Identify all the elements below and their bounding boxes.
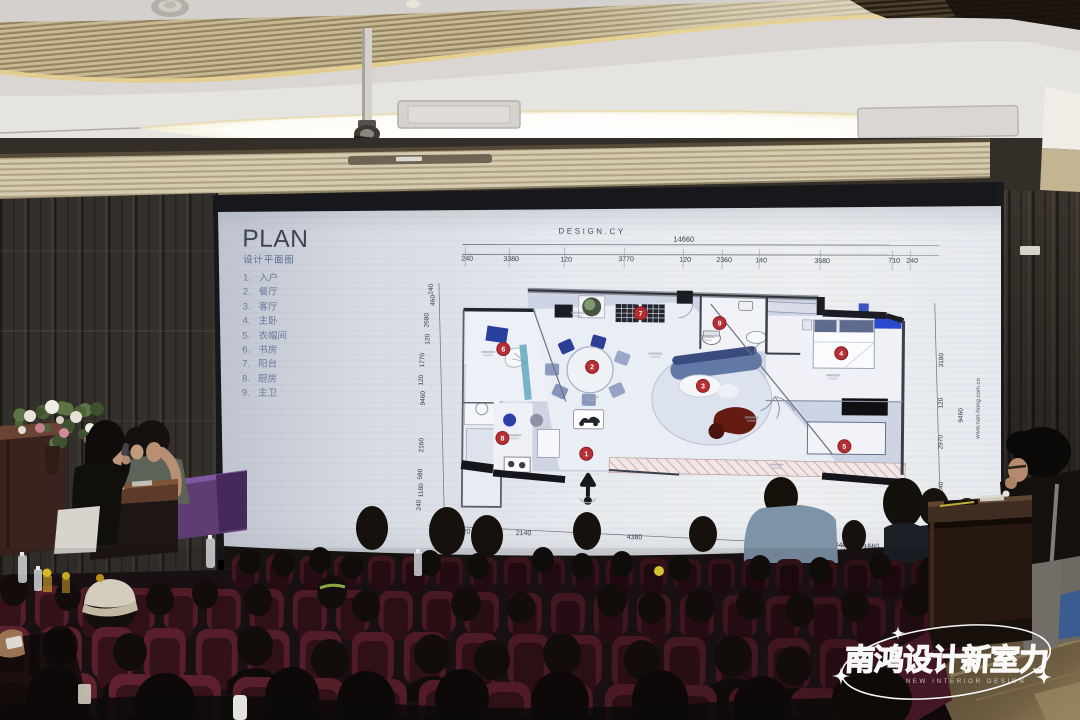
svg-text:9460: 9460 (958, 408, 965, 423)
svg-text:3380: 3380 (503, 256, 519, 263)
svg-text:120: 120 (679, 257, 691, 264)
svg-text:设计平面图: 设计平面图 (243, 253, 295, 265)
svg-text:主卫: 主卫 (258, 387, 278, 399)
svg-text:8.: 8. (242, 373, 250, 384)
svg-text:8: 8 (500, 435, 504, 442)
svg-text:5: 5 (842, 444, 846, 451)
svg-text:140: 140 (755, 257, 767, 264)
svg-text:14660: 14660 (673, 235, 694, 244)
svg-text:240: 240 (906, 258, 918, 265)
svg-text:厨房: 厨房 (258, 373, 277, 385)
svg-text:2: 2 (590, 364, 594, 371)
svg-text:客厅: 客厅 (259, 301, 279, 313)
svg-text:1180: 1180 (418, 483, 425, 497)
svg-text:120: 120 (424, 333, 431, 344)
svg-text:9.: 9. (242, 387, 250, 398)
svg-text:1770: 1770 (419, 353, 426, 368)
svg-text:餐厅: 餐厅 (259, 286, 279, 298)
svg-text:240: 240 (416, 499, 423, 510)
svg-text:120: 120 (560, 257, 572, 264)
svg-text:6: 6 (501, 346, 505, 353)
svg-text:2160: 2160 (418, 438, 425, 453)
svg-text:2140: 2140 (516, 530, 532, 537)
svg-text:4380: 4380 (627, 534, 643, 541)
svg-text:DESIGN.CY: DESIGN.CY (558, 226, 626, 236)
svg-text:5.: 5. (242, 330, 250, 341)
svg-text:衣帽间: 衣帽间 (258, 330, 287, 342)
svg-text:9: 9 (718, 321, 722, 328)
svg-text:6.: 6. (242, 344, 250, 355)
svg-text:3180: 3180 (938, 353, 945, 368)
svg-text:2360: 2360 (716, 257, 732, 264)
svg-text:3: 3 (701, 383, 705, 390)
svg-text:9460: 9460 (420, 391, 427, 406)
svg-text:NEW INTERIOR DESIGN: NEW INTERIOR DESIGN (906, 678, 1027, 685)
svg-text:2680: 2680 (423, 313, 430, 328)
svg-text:7.: 7. (242, 358, 250, 369)
svg-text:书房: 书房 (258, 344, 277, 356)
svg-text:PLAN: PLAN (242, 225, 308, 253)
svg-text:南鸿设计新室力: 南鸿设计新室力 (844, 643, 1049, 677)
svg-text:2.: 2. (243, 286, 251, 297)
svg-text:主卧: 主卧 (258, 315, 278, 327)
svg-text:120: 120 (938, 397, 945, 408)
svg-text:460: 460 (430, 294, 437, 305)
svg-text:www.nan-hong.com.cn: www.nan-hong.com.cn (975, 378, 982, 440)
svg-text:4.: 4. (242, 315, 250, 326)
svg-text:1: 1 (584, 451, 588, 458)
svg-text:4: 4 (839, 351, 843, 358)
svg-text:7: 7 (639, 311, 643, 318)
svg-text:240: 240 (461, 256, 473, 263)
svg-text:1.: 1. (243, 272, 251, 283)
svg-text:3770: 3770 (618, 256, 634, 263)
svg-text:710: 710 (888, 258, 900, 265)
svg-text:120: 120 (418, 374, 425, 385)
svg-text:入户: 入户 (259, 272, 278, 284)
svg-text:580: 580 (417, 468, 424, 479)
svg-text:3.: 3. (243, 301, 251, 312)
svg-text:240: 240 (428, 283, 435, 294)
svg-text:3580: 3580 (814, 258, 830, 265)
svg-text:阳台: 阳台 (258, 358, 277, 370)
